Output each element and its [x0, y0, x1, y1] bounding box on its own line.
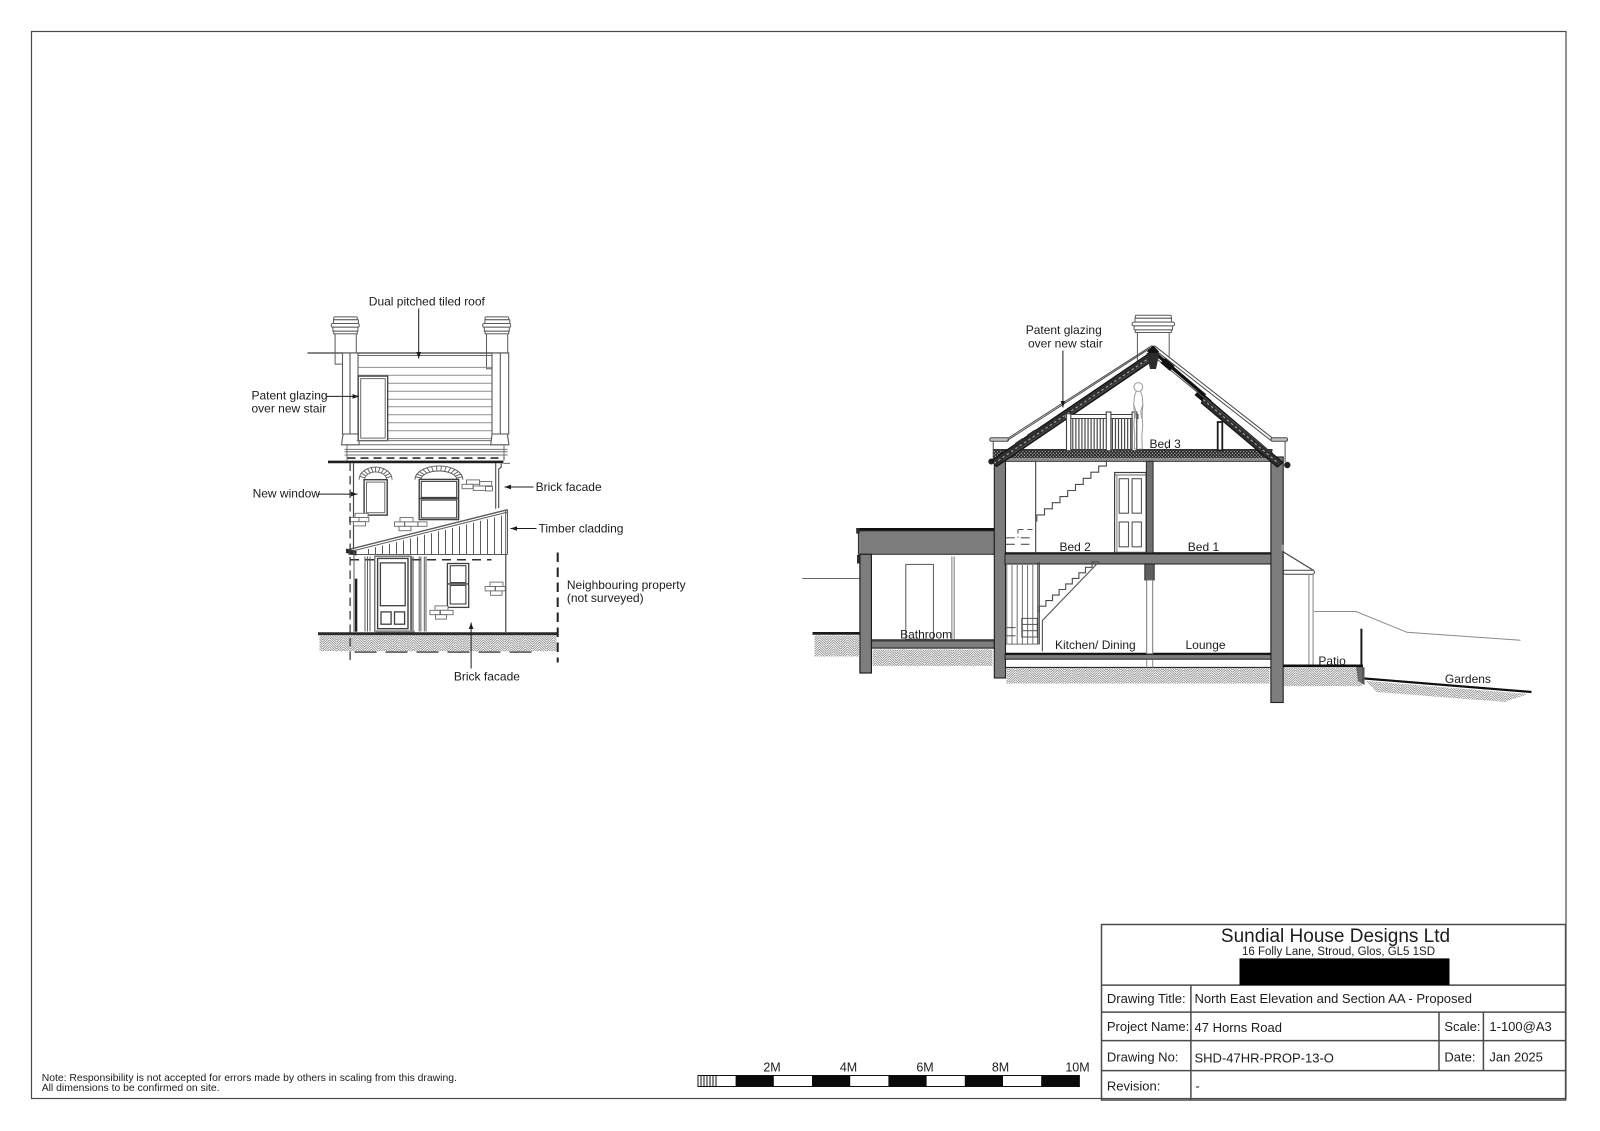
svg-text:All dimensions to be confirmed: All dimensions to be confirmed on site.	[42, 1083, 220, 1094]
svg-text:8M: 8M	[992, 1061, 1009, 1075]
svg-text:Bed 1: Bed 1	[1188, 540, 1220, 554]
svg-text:over new stair: over new stair	[1028, 337, 1103, 351]
svg-text:Drawing Title:: Drawing Title:	[1107, 991, 1186, 1006]
svg-text:10M: 10M	[1065, 1061, 1089, 1075]
svg-text:Project Name:: Project Name:	[1107, 1019, 1189, 1034]
svg-text:Bed 3: Bed 3	[1150, 437, 1182, 451]
svg-text:Patent glazing: Patent glazing	[1026, 323, 1102, 337]
svg-text:Sundial House Designs Ltd: Sundial House Designs Ltd	[1221, 926, 1450, 947]
svg-text:SHD-47HR-PROP-13-O: SHD-47HR-PROP-13-O	[1195, 1051, 1334, 1066]
svg-text:North East Elevation and Secti: North East Elevation and Section AA - Pr…	[1195, 991, 1473, 1006]
svg-text:Bed 2: Bed 2	[1060, 540, 1092, 554]
svg-text:New window: New window	[253, 487, 321, 501]
svg-text:4M: 4M	[840, 1061, 857, 1075]
svg-text:1-100@A3: 1-100@A3	[1489, 1019, 1551, 1034]
svg-text:Revision:: Revision:	[1107, 1079, 1160, 1094]
svg-text:Patio: Patio	[1318, 654, 1346, 668]
svg-text:Jan 2025: Jan 2025	[1489, 1050, 1543, 1065]
svg-text:(not surveyed): (not surveyed)	[567, 591, 644, 605]
svg-text:Brick facade: Brick facade	[536, 480, 602, 494]
svg-text:Bathroom: Bathroom	[900, 627, 952, 641]
svg-text:-: -	[1195, 1079, 1199, 1094]
svg-text:2M: 2M	[763, 1061, 780, 1075]
svg-text:Brick facade: Brick facade	[454, 670, 520, 684]
svg-text:over new stair: over new stair	[252, 401, 327, 415]
svg-text:Gardens: Gardens	[1445, 672, 1491, 686]
svg-text:6M: 6M	[916, 1061, 933, 1075]
svg-text:Scale:: Scale:	[1444, 1019, 1480, 1034]
svg-text:Dual pitched tiled roof: Dual pitched tiled roof	[369, 295, 486, 309]
svg-text:47 Horns Road: 47 Horns Road	[1195, 1020, 1282, 1035]
svg-text:Kitchen/ Dining: Kitchen/ Dining	[1055, 638, 1136, 652]
svg-text:Date:: Date:	[1444, 1050, 1475, 1065]
svg-text:16 Folly Lane, Stroud, Glos, G: 16 Folly Lane, Stroud, Glos, GL5 1SD	[1242, 946, 1435, 958]
svg-text:Lounge: Lounge	[1186, 638, 1226, 652]
svg-text:Drawing No:: Drawing No:	[1107, 1050, 1179, 1065]
svg-text:Timber cladding: Timber cladding	[539, 522, 624, 536]
